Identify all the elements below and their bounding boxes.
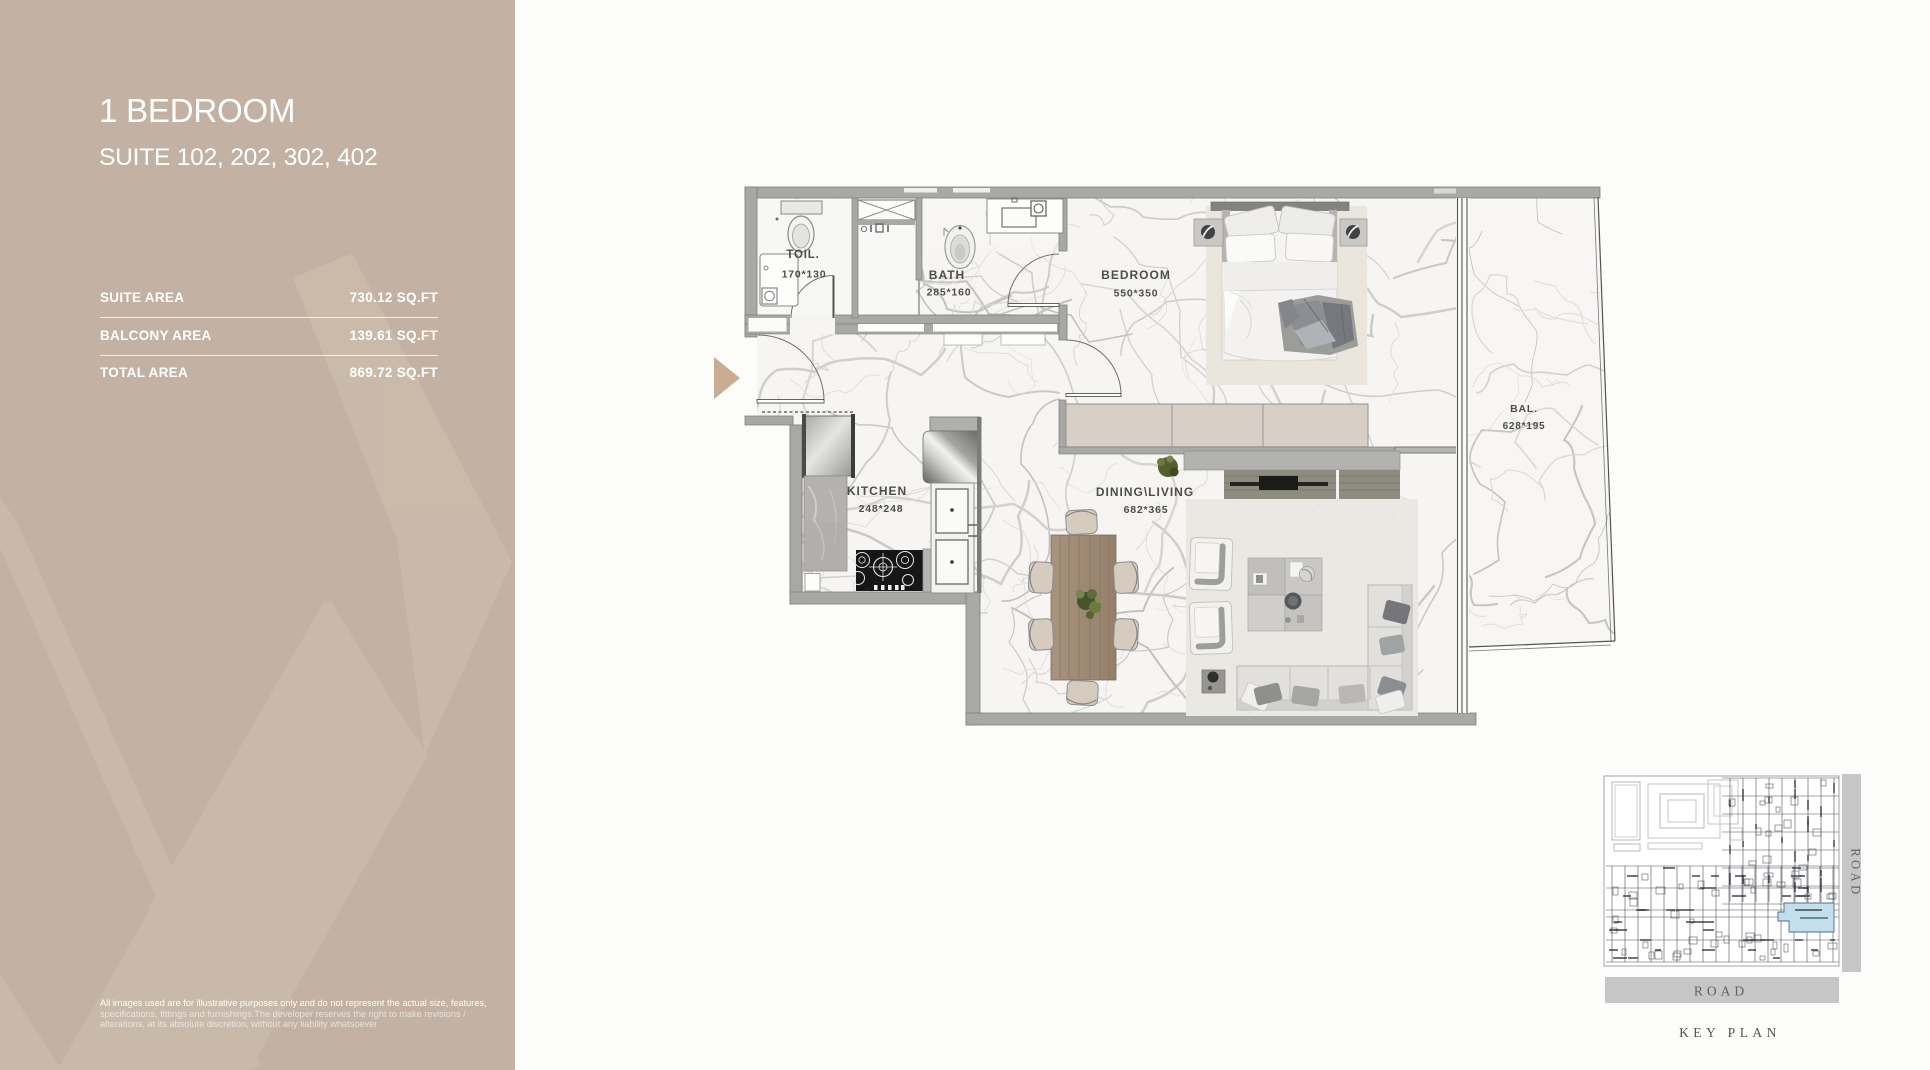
svg-text:KEY PLAN: KEY PLAN	[1679, 1025, 1781, 1040]
svg-text:DINING\LIVING: DINING\LIVING	[1096, 485, 1194, 499]
svg-text:BATH: BATH	[929, 268, 965, 282]
svg-text:TOIL.: TOIL.	[786, 249, 819, 261]
svg-text:BEDROOM: BEDROOM	[1101, 268, 1171, 282]
svg-text:BAL.: BAL.	[1510, 403, 1538, 415]
svg-text:170*130: 170*130	[782, 269, 827, 281]
svg-text:248*248: 248*248	[859, 503, 904, 515]
svg-text:285*160: 285*160	[927, 287, 972, 299]
svg-text:628*195: 628*195	[1503, 421, 1546, 432]
svg-text:550*350: 550*350	[1114, 288, 1159, 300]
svg-text:ROAD: ROAD	[1849, 848, 1863, 897]
svg-text:682*365: 682*365	[1124, 504, 1169, 516]
svg-text:KITCHEN: KITCHEN	[847, 484, 907, 498]
svg-text:ROAD: ROAD	[1694, 984, 1748, 999]
